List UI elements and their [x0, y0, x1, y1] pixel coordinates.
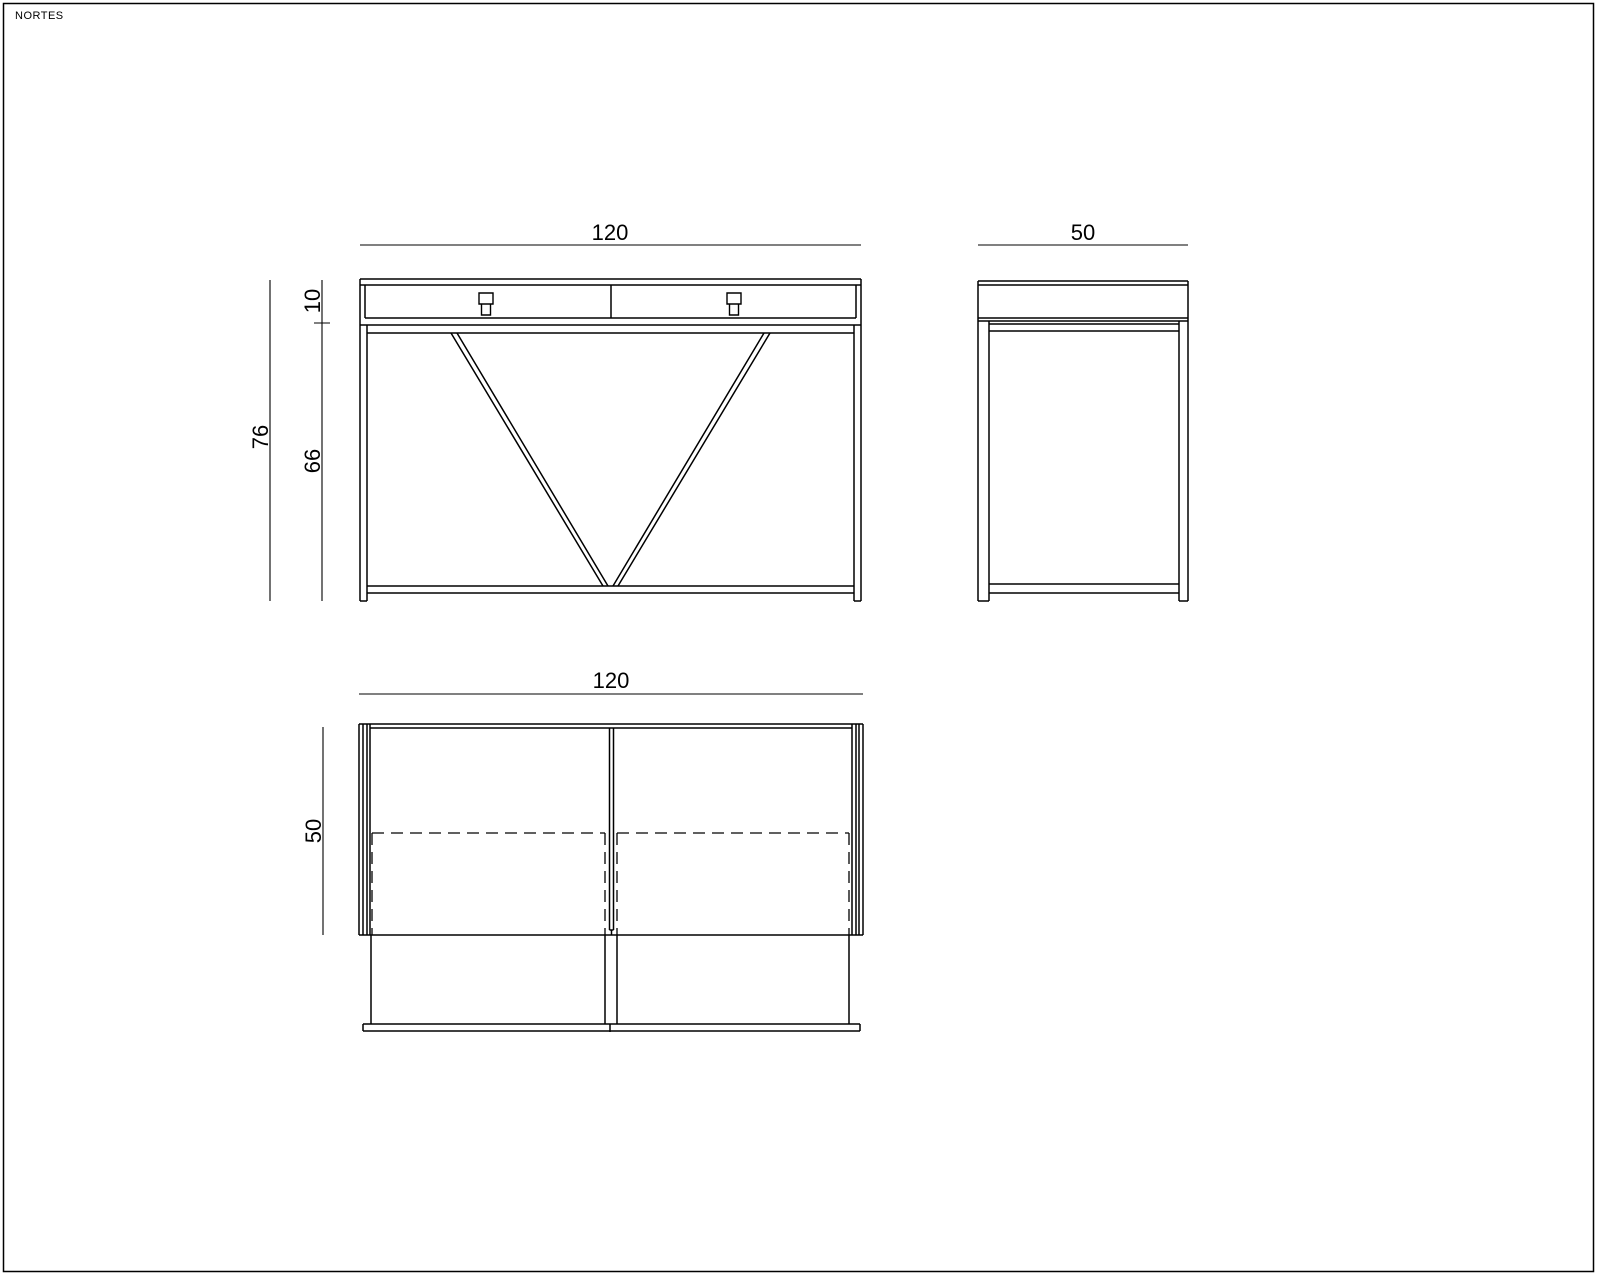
- sheet-border: [4, 4, 1594, 1272]
- side-view: 50: [978, 220, 1188, 601]
- front-lower-section-dim-label: 66: [300, 449, 325, 473]
- side-outline-lines: [978, 281, 1188, 601]
- front-top-section-dim-label: 10: [300, 289, 325, 313]
- plan-hidden-frame-lines: [372, 833, 849, 935]
- side-depth-dim-label: 50: [1071, 220, 1095, 245]
- front-dimension-lines: [270, 245, 861, 601]
- front-v-legs: [451, 333, 770, 586]
- plan-width-dim-label: 120: [593, 668, 630, 693]
- plan-outline-lines: [359, 724, 863, 1032]
- front-outline-lines: [360, 279, 861, 601]
- front-drawer-handle-right: [727, 293, 741, 315]
- plan-depth-dim-label: 50: [301, 819, 326, 843]
- front-total-height-dim-label: 76: [248, 425, 273, 449]
- front-width-dim-label: 120: [592, 220, 629, 245]
- cad-drawing-canvas: NORTES 120 76 10 66 50 120 50: [0, 0, 1600, 1280]
- plan-view: 120 50: [301, 668, 863, 1032]
- front-view: 120 76 10 66: [248, 220, 861, 601]
- plan-dimension-lines: [323, 694, 863, 935]
- drawing-sheet: NORTES 120 76 10 66 50 120 50: [0, 0, 1600, 1280]
- title-block-label: NORTES: [15, 10, 64, 22]
- front-drawer-handle-left: [479, 293, 493, 315]
